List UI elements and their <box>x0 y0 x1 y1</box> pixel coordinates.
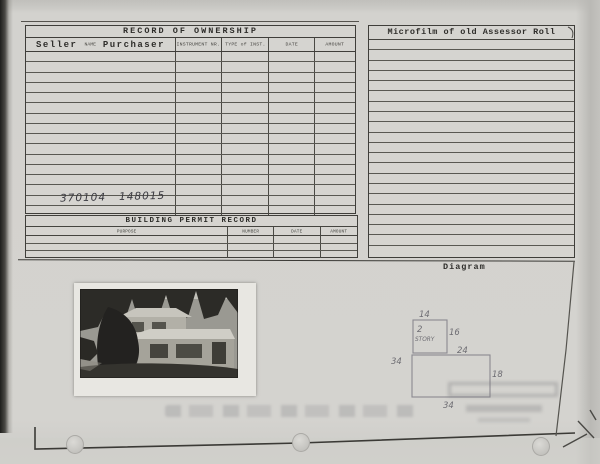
purpose-column-header: PURPOSE <box>26 227 228 235</box>
dim-story-count: 2 <box>417 325 422 335</box>
microfilm-empty-line <box>369 122 574 132</box>
microfilm-empty-line <box>369 215 574 225</box>
microfilm-empty-line <box>369 61 574 71</box>
ownership-header-row: Seller NAME Purchaser INSTRUMENT NR. TYP… <box>26 38 355 52</box>
microfilm-empty-line <box>369 112 574 122</box>
dim-step-width: 24 <box>457 346 468 356</box>
microfilm-empty-line <box>369 40 574 50</box>
ownership-empty-row <box>26 165 355 175</box>
house-photo-image <box>80 289 238 378</box>
record-of-ownership-table: RECORD OF OWNERSHIP Seller NAME Purchase… <box>25 25 356 214</box>
punch-hole-center <box>292 433 310 452</box>
permit-empty-row <box>26 236 357 244</box>
scan-right-shadow <box>576 0 600 464</box>
permit-date-column-header: DATE <box>274 227 321 235</box>
scan-top-shadow <box>0 0 600 12</box>
microfilm-empty-line <box>369 91 574 101</box>
instrument-column-header: INSTRUMENT NR. <box>176 38 222 51</box>
section-divider-rule <box>18 259 575 261</box>
microfilm-empty-line <box>369 246 574 255</box>
microfilm-empty-line <box>369 174 574 184</box>
microfilm-empty-line <box>369 205 574 215</box>
ownership-empty-row <box>26 62 355 72</box>
microfilm-empty-line <box>369 81 574 91</box>
dim-right-depth: 18 <box>492 370 503 380</box>
name-label: NAME <box>84 42 96 48</box>
scan-left-edge <box>0 0 13 433</box>
permit-rows <box>26 236 357 258</box>
ownership-empty-row <box>26 144 355 154</box>
permit-amount-column-header: AMOUNT <box>321 227 357 235</box>
microfilm-empty-line <box>369 225 574 235</box>
ownership-rows <box>26 52 355 215</box>
seller-label: Seller <box>36 40 77 50</box>
permit-header-row: PURPOSE NUMBER DATE AMOUNT <box>26 227 357 236</box>
microfilm-empty-line <box>369 50 574 60</box>
microfilm-ruled-lines <box>369 40 574 255</box>
story-word: STORY <box>415 337 435 343</box>
microfilm-empty-line <box>369 102 574 112</box>
bleed-through-text <box>165 405 417 417</box>
microfilm-empty-line <box>369 133 574 143</box>
building-permit-table: BUILDING PERMIT RECORD PURPOSE NUMBER DA… <box>25 215 358 258</box>
ownership-name-header: Seller NAME Purchaser <box>26 38 176 51</box>
microfilm-empty-line <box>369 143 574 153</box>
date-column-header: DATE <box>269 38 315 51</box>
bleed-through-stamp <box>448 382 560 426</box>
ownership-empty-row <box>26 206 355 215</box>
microfilm-title: Microfilm of old Assessor Roll <box>369 26 574 40</box>
ownership-title: RECORD OF OWNERSHIP <box>26 26 355 38</box>
ownership-empty-row <box>26 175 355 185</box>
ownership-empty-row <box>26 114 355 124</box>
dim-upper-width: 14 <box>419 310 430 320</box>
permit-empty-row <box>26 251 357 258</box>
ownership-empty-row <box>26 103 355 113</box>
ownership-empty-row <box>26 124 355 134</box>
microfilm-empty-line <box>369 235 574 245</box>
microfilm-empty-line <box>369 71 574 81</box>
ownership-empty-row <box>26 155 355 165</box>
purchaser-label: Purchaser <box>103 40 165 50</box>
microfilm-panel: Microfilm of old Assessor Roll <box>368 25 575 258</box>
ownership-empty-row <box>26 73 355 83</box>
ownership-empty-row <box>26 83 355 93</box>
punch-hole-right <box>532 437 550 456</box>
punch-hole-left <box>66 435 84 454</box>
ownership-empty-row <box>26 93 355 103</box>
amount-column-header: AMOUNT <box>315 38 355 51</box>
permit-empty-row <box>26 244 357 252</box>
microfilm-empty-line <box>369 153 574 163</box>
diagram-section-label: Diagram <box>443 262 486 272</box>
ownership-empty-row <box>26 52 355 62</box>
permit-title: BUILDING PERMIT RECORD <box>26 216 357 227</box>
house-photograph <box>74 283 256 396</box>
scanned-assessor-card: RECORD OF OWNERSHIP Seller NAME Purchase… <box>0 0 600 464</box>
microfilm-empty-line <box>369 184 574 194</box>
dim-upper-depth: 16 <box>449 328 460 338</box>
microfilm-empty-line <box>369 194 574 204</box>
dim-left-width: 34 <box>391 357 402 367</box>
microfilm-empty-line <box>369 163 574 173</box>
number-column-header: NUMBER <box>228 227 274 235</box>
type-column-header: TYPE of INST. <box>222 38 269 51</box>
ownership-empty-row <box>26 134 355 144</box>
